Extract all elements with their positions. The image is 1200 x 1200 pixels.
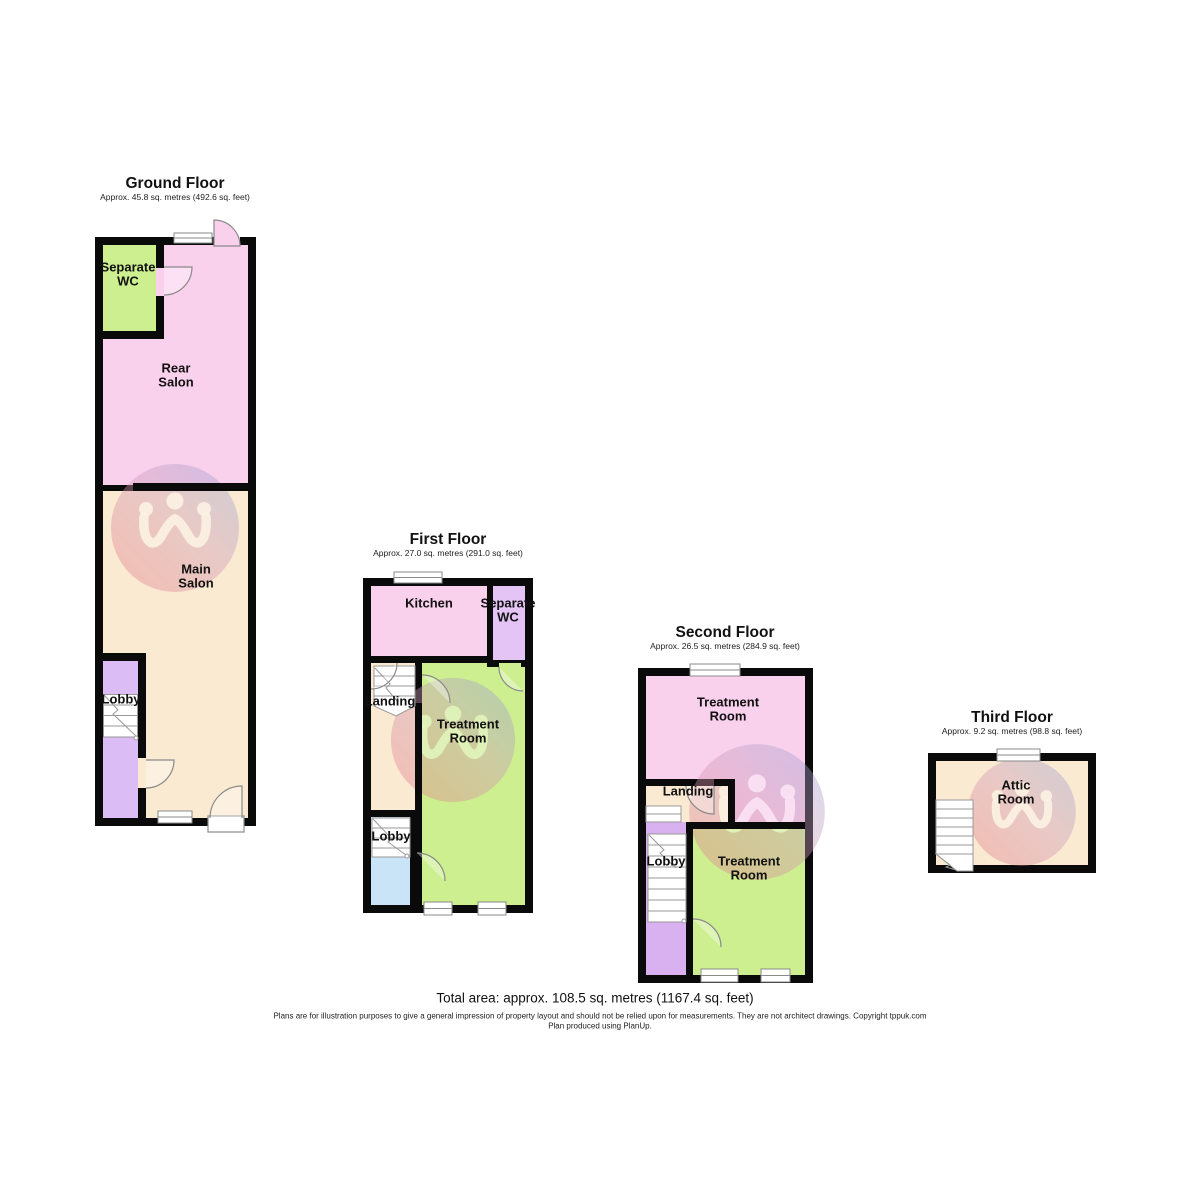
floor-subtitle-ground: Approx. 45.8 sq. metres (492.6 sq. feet) (100, 192, 250, 202)
room-label-separate-wc-ground: Separate WC (99, 261, 157, 288)
total-area-text: Total area: approx. 108.5 sq. metres (11… (436, 991, 753, 1006)
floor-title-ground: Ground Floor (125, 175, 224, 193)
room-label-treatment-second-top: Treatment Room (691, 696, 765, 723)
room-label-kitchen: Kitchen (405, 596, 453, 610)
room-label-landing-second: Landing (663, 784, 714, 798)
room-label-rear-salon: Rear Salon (154, 362, 198, 389)
produced-by-text: Plan produced using PlanUp. (548, 1022, 652, 1031)
floor-title-second: Second Floor (675, 624, 774, 642)
windows (997, 749, 1040, 761)
room-label-lobby-second: Lobby (647, 854, 686, 868)
room-label-treatment-first: Treatment Room (431, 718, 505, 745)
floorplan-page: { "palette": { "wall": "#0a0a0a", "room_… (0, 0, 1200, 1200)
floor-plan-ground (95, 220, 256, 832)
room-label-lobby-ground: Lobby (102, 692, 141, 706)
floor-title-third: Third Floor (971, 709, 1053, 727)
floor-plan-third (928, 749, 1096, 873)
room-label-attic-room: Attic Room (994, 779, 1038, 806)
disclaimer-text: Plans are for illustration purposes to g… (273, 1012, 926, 1021)
floor-subtitle-first: Approx. 27.0 sq. metres (291.0 sq. feet) (373, 548, 523, 558)
room-label-main-salon: Main Salon (174, 563, 218, 590)
room-label-treatment-second-bottom: Treatment Room (712, 855, 786, 882)
floor-subtitle-second: Approx. 26.5 sq. metres (284.9 sq. feet) (650, 641, 800, 651)
room-label-landing-first: Landing (365, 694, 416, 708)
room-label-separate-wc-first: Separate WC (479, 597, 537, 624)
watermark-logo (968, 758, 1076, 866)
floor-title-first: First Floor (410, 531, 487, 549)
room-label-lobby-first: Lobby (372, 829, 411, 843)
floor-subtitle-third: Approx. 9.2 sq. metres (98.8 sq. feet) (942, 726, 1082, 736)
